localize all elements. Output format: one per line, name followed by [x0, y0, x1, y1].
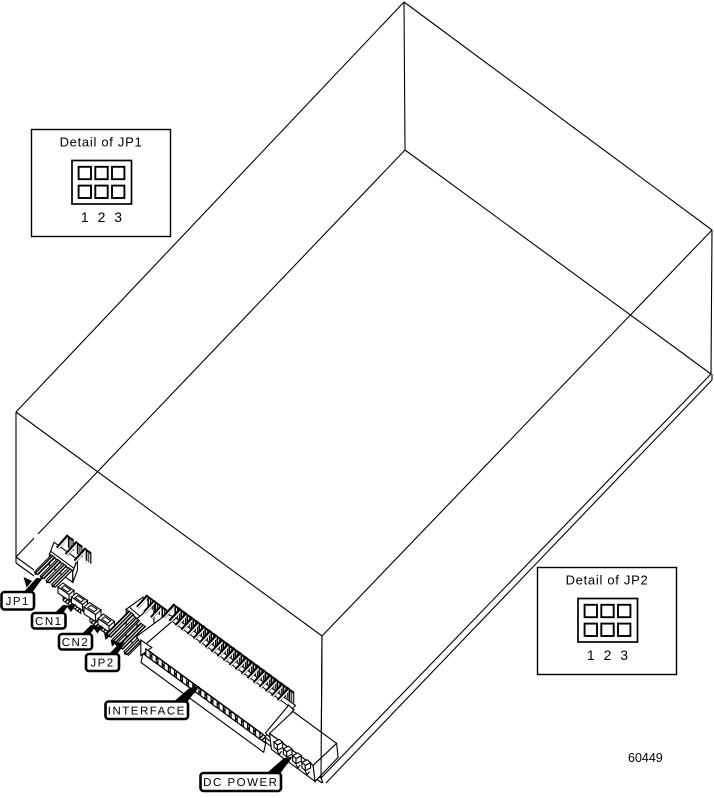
- svg-text:CN1: CN1: [35, 616, 63, 628]
- svg-text:2: 2: [604, 647, 612, 663]
- svg-text:DC POWER: DC POWER: [203, 777, 278, 789]
- svg-text:Detail of JP1: Detail of JP1: [60, 134, 143, 149]
- svg-text:INTERFACE: INTERFACE: [108, 705, 186, 717]
- svg-text:2: 2: [98, 209, 106, 225]
- svg-text:3: 3: [620, 647, 628, 663]
- svg-text:JP1: JP1: [6, 596, 30, 608]
- svg-text:CN2: CN2: [62, 637, 90, 649]
- svg-text:3: 3: [114, 209, 122, 225]
- svg-text:JP2: JP2: [90, 658, 114, 670]
- svg-text:Detail of JP2: Detail of JP2: [566, 572, 649, 587]
- svg-text:1: 1: [81, 209, 89, 225]
- svg-text:60449: 60449: [628, 751, 663, 765]
- svg-text:1: 1: [587, 647, 595, 663]
